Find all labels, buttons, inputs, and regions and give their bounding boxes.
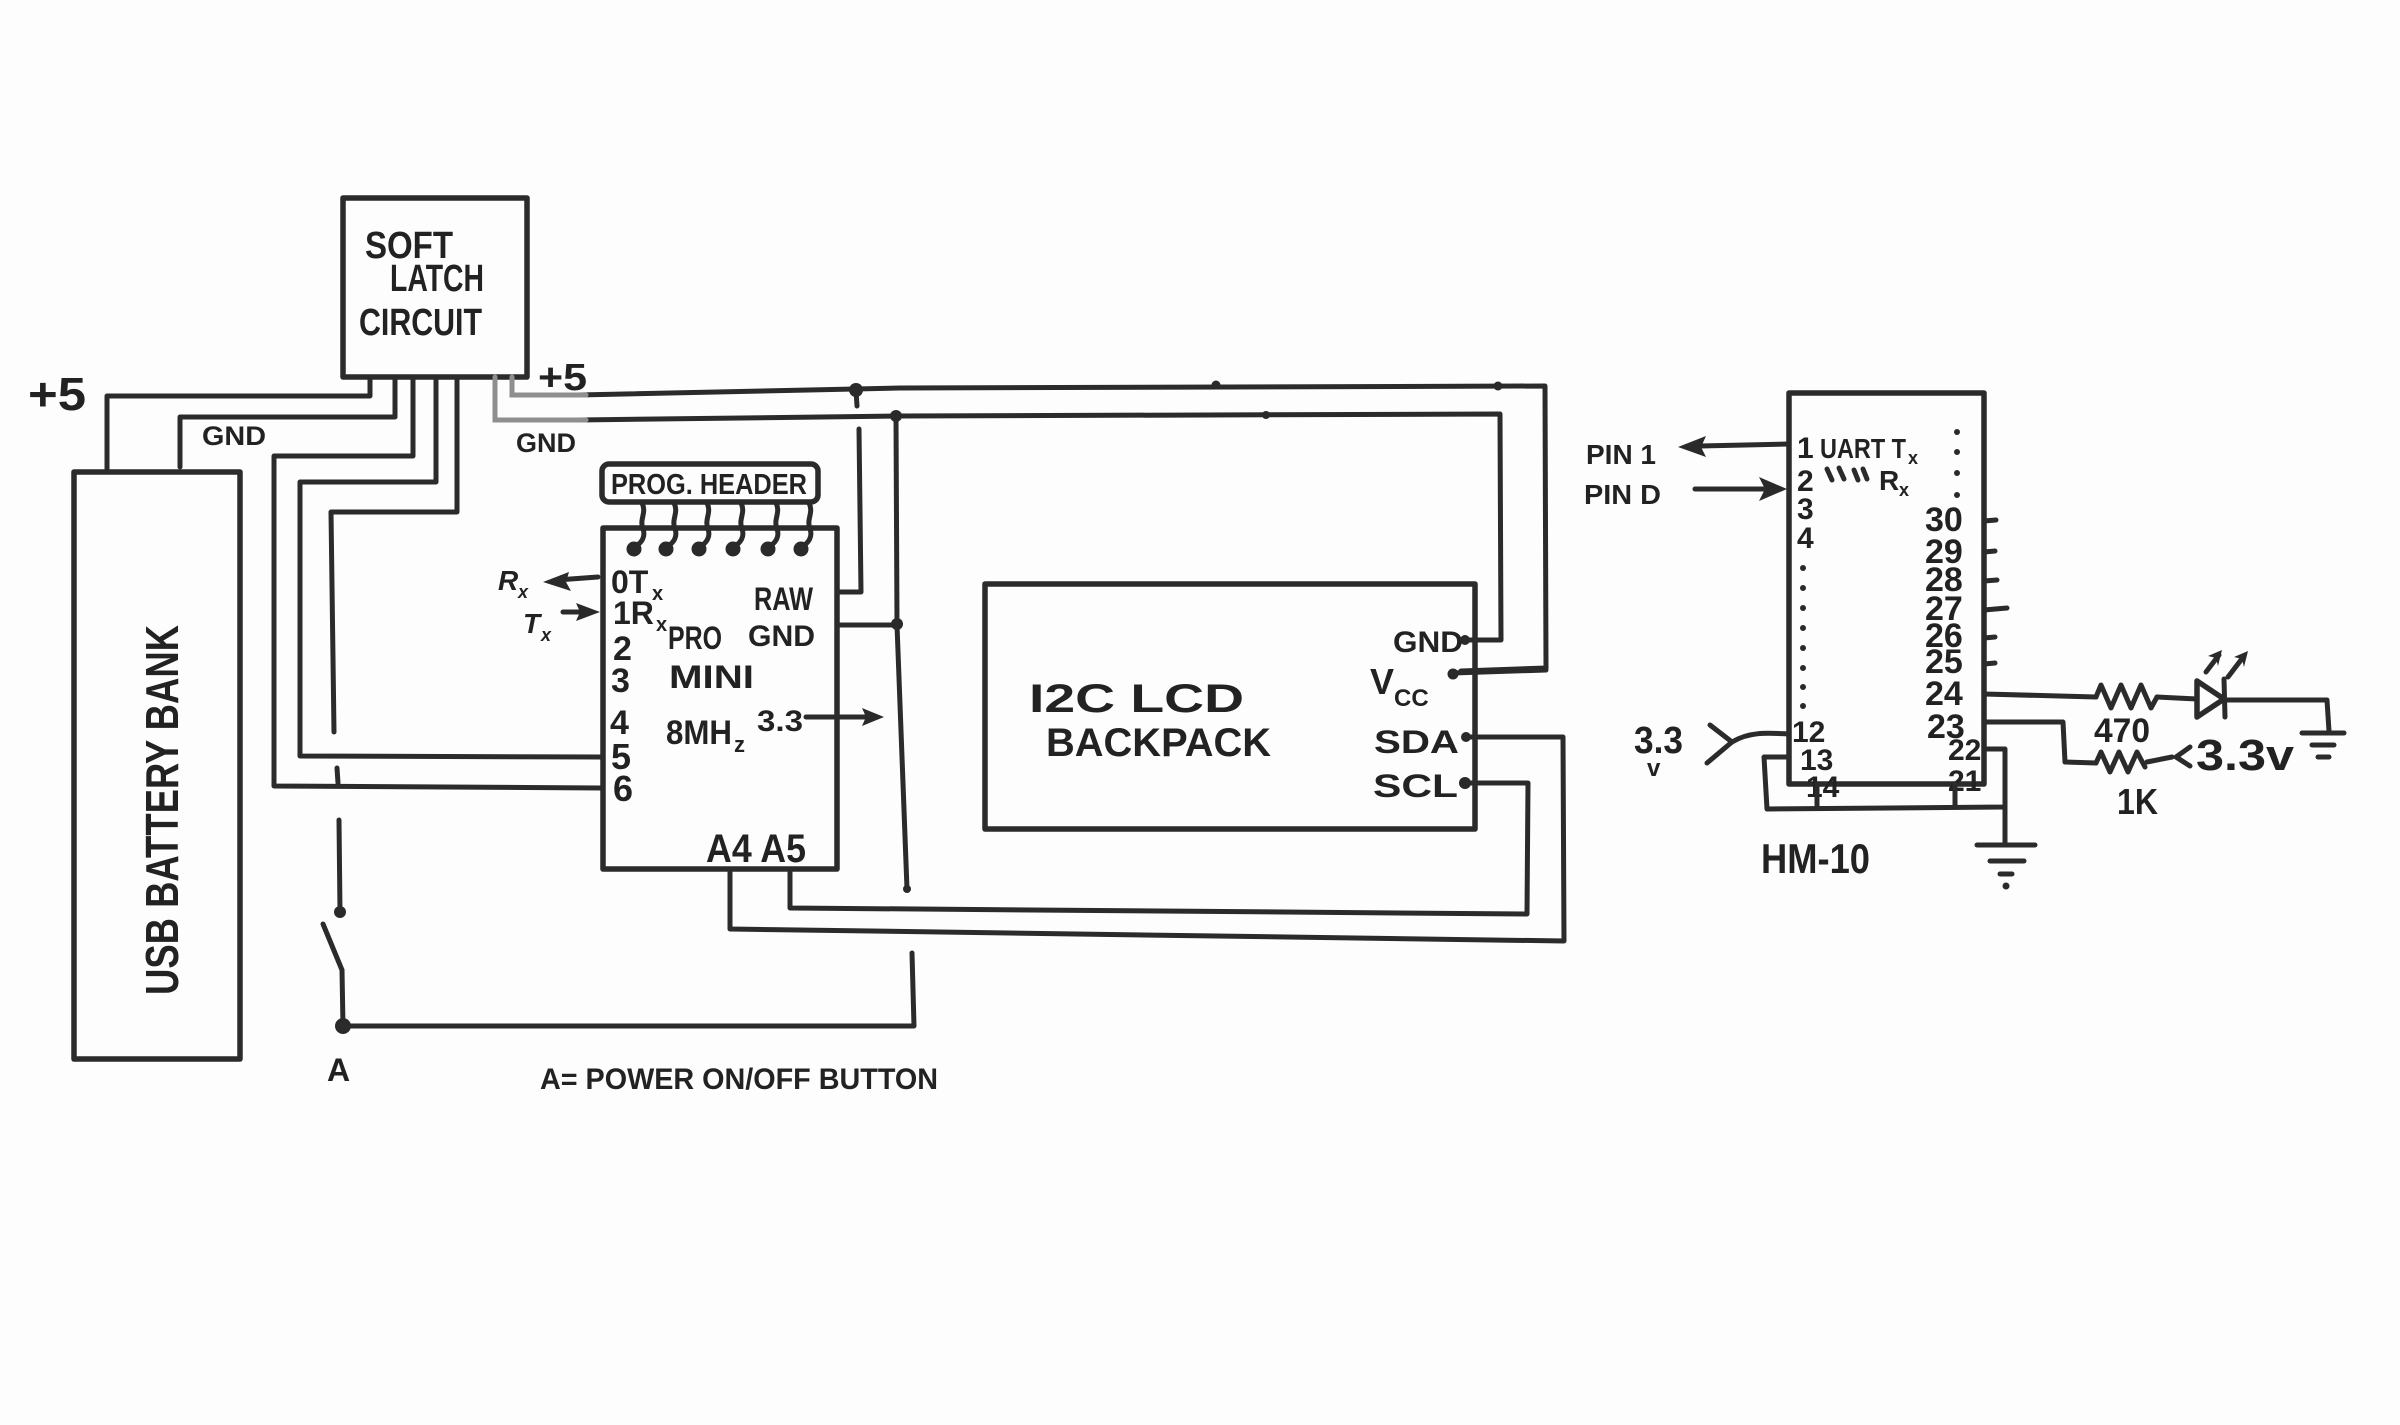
svg-text:x: x (656, 614, 667, 636)
svg-text:3.3v: 3.3v (2196, 731, 2295, 780)
svg-text:A= POWER ON/OFF BUTTON: A= POWER ON/OFF BUTTON (540, 1063, 938, 1096)
svg-text:v: v (1647, 755, 1661, 782)
svg-text:x: x (1899, 480, 1909, 500)
svg-text:PROG. HEADER: PROG. HEADER (611, 469, 807, 501)
svg-text:470: 470 (2094, 712, 2150, 750)
svg-text:V: V (1370, 661, 1394, 702)
svg-text:3: 3 (611, 662, 630, 700)
svg-text:SDA: SDA (1374, 724, 1459, 760)
svg-text:GND: GND (1393, 626, 1463, 659)
svg-text:A4 A5: A4 A5 (706, 827, 806, 871)
svg-text:8MH: 8MH (666, 714, 732, 752)
svg-text:x: x (1908, 448, 1918, 468)
svg-text:+5: +5 (538, 357, 587, 399)
svg-text:UART T: UART T (1820, 433, 1906, 464)
svg-text:LATCH: LATCH (390, 258, 484, 300)
svg-text:SCL: SCL (1373, 768, 1458, 804)
svg-text:22: 22 (1948, 734, 1981, 767)
svg-text:CC: CC (1394, 685, 1429, 712)
svg-text:BACKPACK: BACKPACK (1046, 721, 1271, 765)
svg-text:GND: GND (516, 428, 576, 458)
svg-text:HM-10: HM-10 (1761, 835, 1870, 882)
svg-text:3.3: 3.3 (757, 705, 803, 738)
svg-text:USB BATTERY BANK: USB BATTERY BANK (136, 625, 188, 995)
svg-text:6: 6 (613, 768, 633, 809)
svg-text:PIN D: PIN D (1584, 479, 1661, 510)
svg-text:GND: GND (748, 620, 815, 653)
svg-text:CIRCUIT: CIRCUIT (359, 302, 482, 344)
svg-text:A: A (327, 1052, 350, 1088)
svg-text:1K: 1K (2117, 781, 2158, 822)
svg-text:x: x (517, 582, 529, 602)
svg-text:RAW: RAW (754, 581, 814, 617)
svg-text:1: 1 (1797, 432, 1814, 465)
svg-text:I2C LCD: I2C LCD (1029, 677, 1244, 721)
svg-text:GND: GND (202, 421, 266, 451)
svg-text:+5: +5 (28, 368, 86, 420)
svg-text:PIN 1: PIN 1 (1586, 439, 1656, 470)
svg-text:MINI: MINI (669, 659, 754, 695)
svg-text:R: R (498, 565, 519, 596)
svg-text:1R: 1R (613, 595, 654, 631)
svg-text:z: z (734, 732, 745, 757)
svg-text:R: R (1879, 465, 1899, 496)
svg-text:x: x (540, 625, 552, 645)
svg-text:PRO: PRO (668, 620, 722, 656)
svg-text:14: 14 (1806, 771, 1840, 804)
svg-text:T: T (523, 608, 543, 639)
svg-text:4: 4 (1797, 522, 1814, 555)
